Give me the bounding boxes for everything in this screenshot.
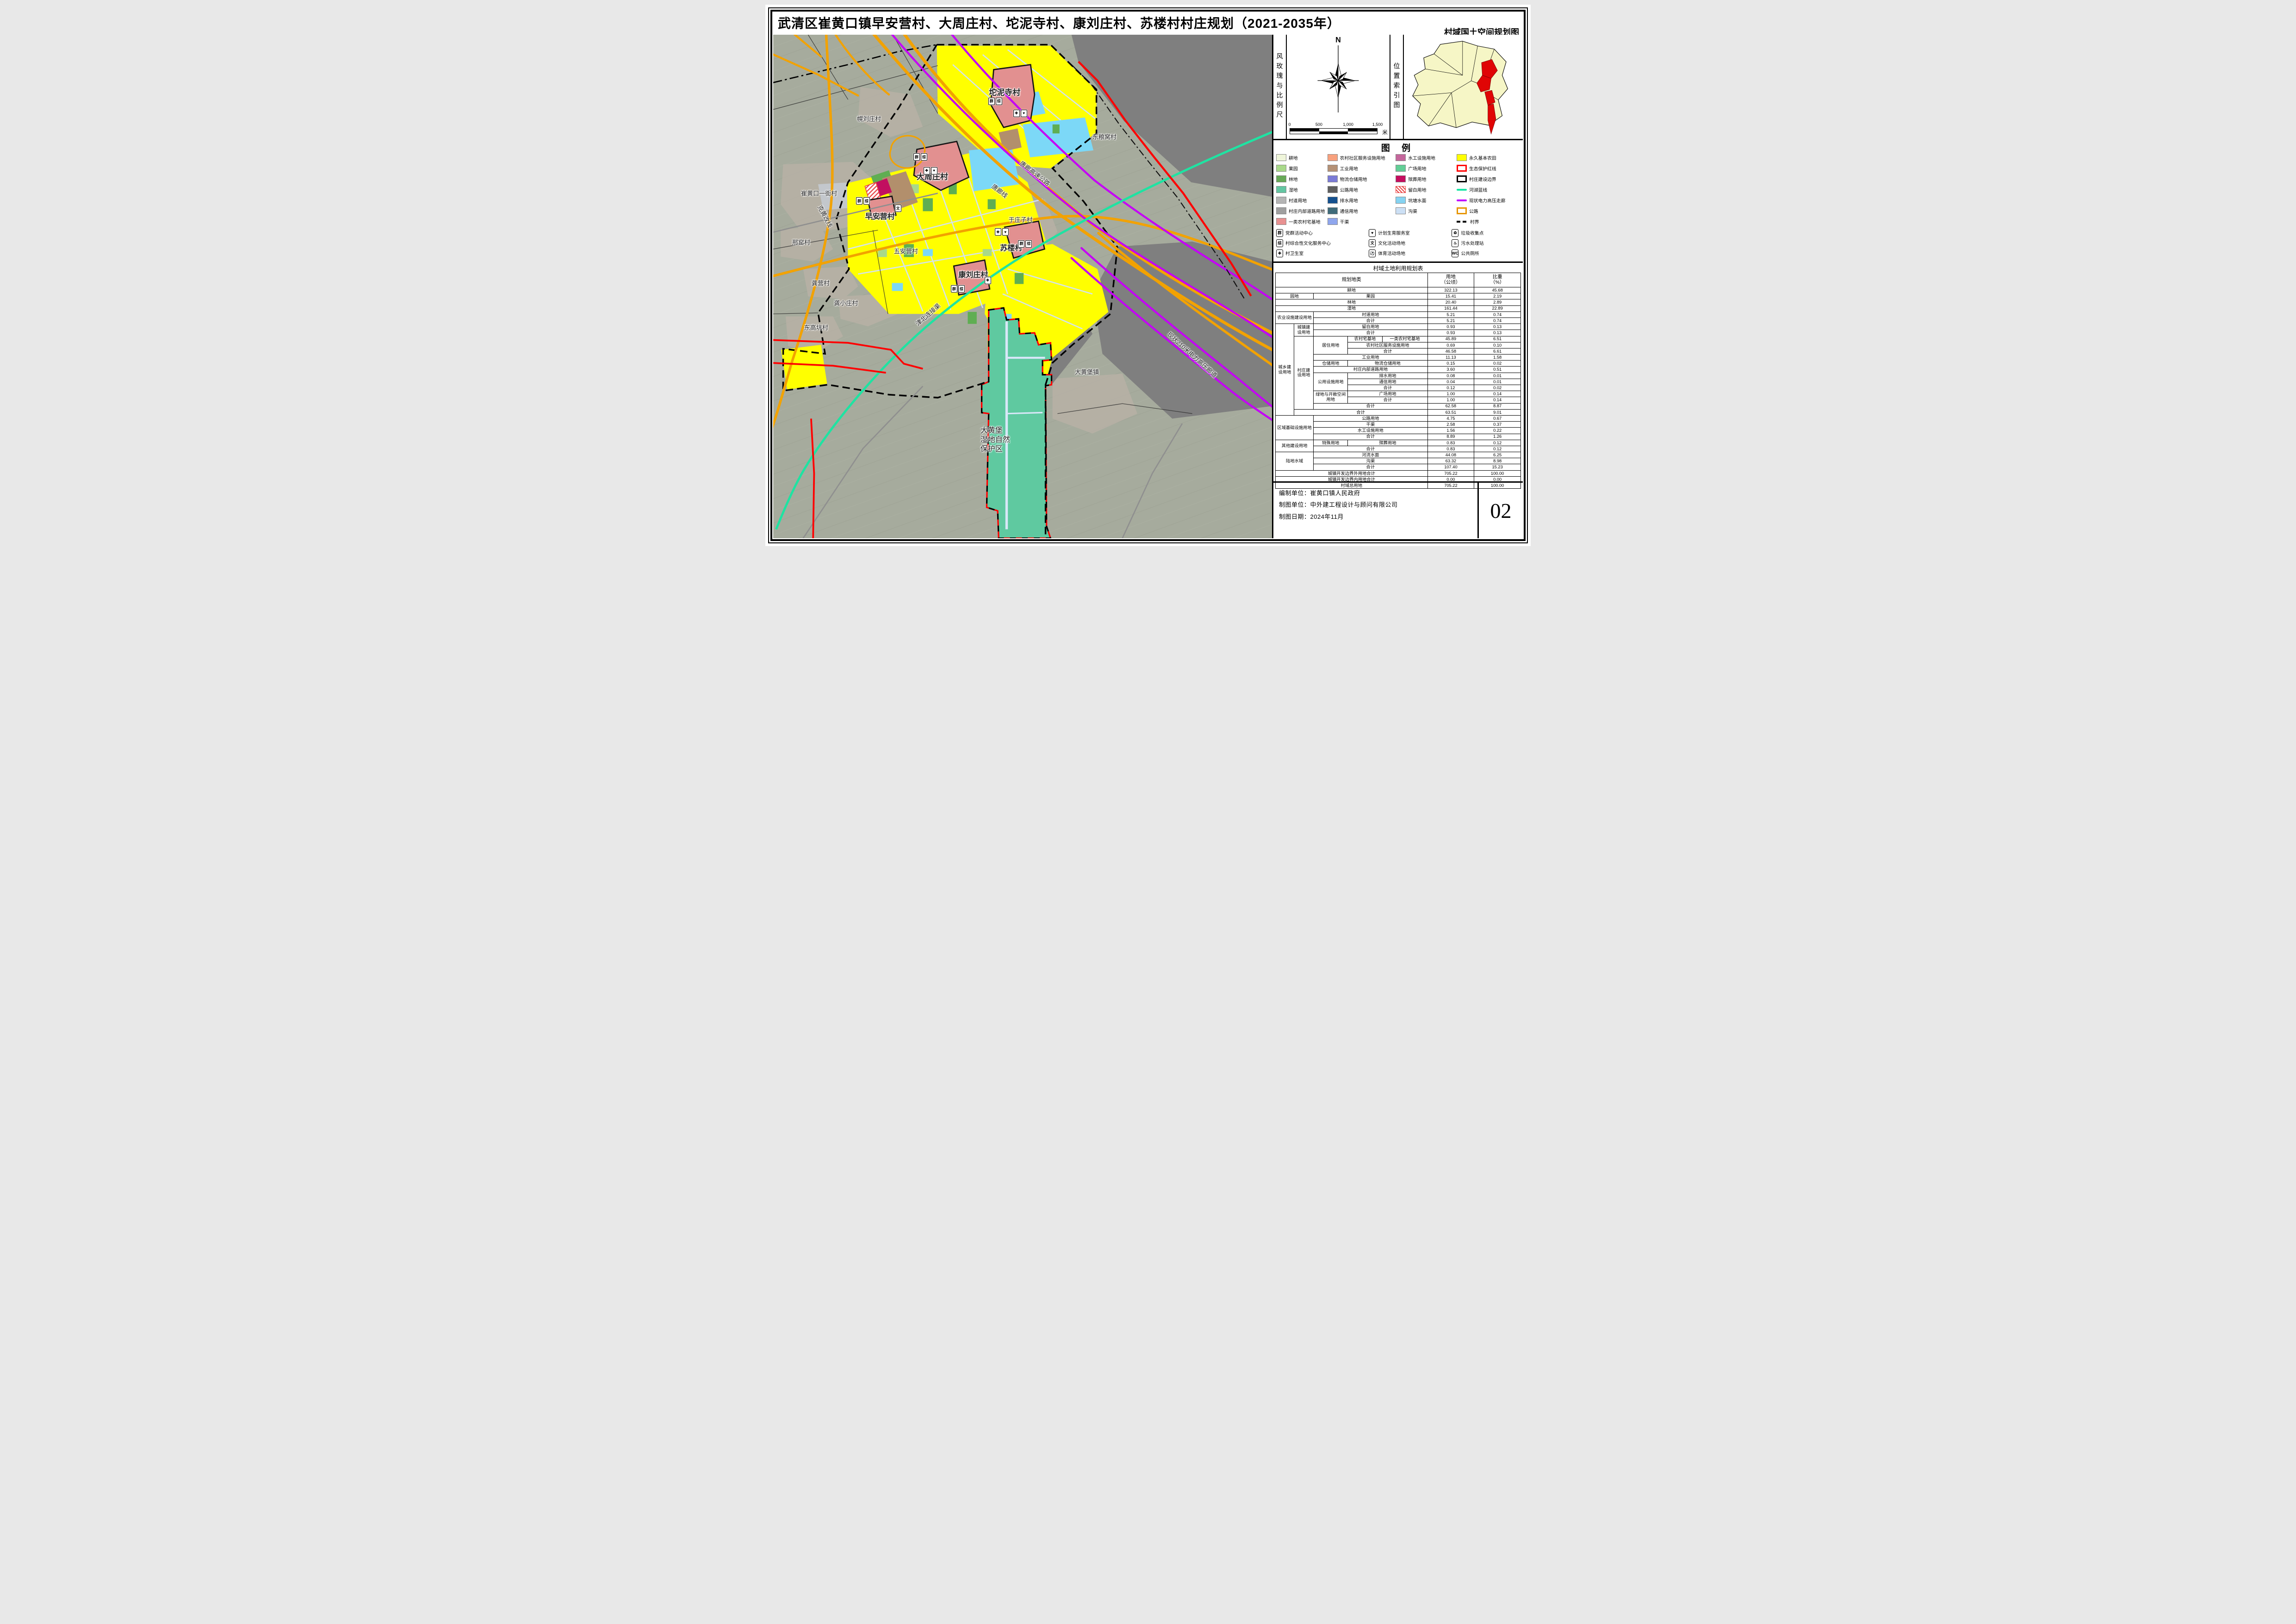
- legend-swatch-icon: [1328, 175, 1338, 182]
- table-cell: 农业设施建设用地: [1276, 311, 1314, 324]
- table-cell: 湿地: [1276, 305, 1428, 311]
- table-cell: 一类农村宅基地: [1382, 336, 1427, 342]
- legend-swatch-icon: [1396, 186, 1406, 193]
- facility-legend-item: ♻垃圾收集点: [1452, 228, 1520, 238]
- table-cell: 城镇开发边界外用地合计: [1276, 470, 1428, 476]
- legend-item: 通信用地: [1328, 205, 1396, 216]
- table-cell: 63.32: [1427, 458, 1474, 464]
- table-cell: 0.01: [1474, 373, 1521, 379]
- table-cell: 居住用地: [1314, 336, 1348, 355]
- legend-label: 工业用地: [1340, 165, 1358, 172]
- legend-swatch-icon: [1276, 175, 1286, 182]
- compass-section-label: 风玫瑰与比例尺: [1273, 35, 1287, 139]
- legend-label: 果园: [1289, 165, 1298, 172]
- table-cell: 0.93: [1427, 330, 1474, 336]
- table-cell: 殡葬用地: [1348, 440, 1427, 446]
- legend-label: 通信用地: [1340, 208, 1358, 214]
- table-cell: 8.98: [1474, 458, 1521, 464]
- table-cell: 0.08: [1427, 373, 1474, 379]
- legend-label: 一类农村宅基地: [1289, 218, 1321, 225]
- table-cell: 1.56: [1427, 428, 1474, 434]
- legend-swatch-icon: [1328, 154, 1338, 161]
- table-cell: 9.01: [1474, 409, 1521, 415]
- legend-label: 村界: [1470, 218, 1479, 225]
- table-cell: 161.44: [1427, 305, 1474, 311]
- legend-label: 公路: [1469, 208, 1478, 214]
- table-cell: 5.21: [1427, 317, 1474, 324]
- table-cell: 100.00: [1474, 470, 1521, 476]
- facility-label: 计划生育服务室: [1378, 230, 1410, 236]
- legend-label: 排水用地: [1340, 197, 1358, 204]
- table-cell: 0.13: [1474, 324, 1521, 330]
- table-cell: 0.02: [1474, 385, 1521, 391]
- legend-label: 农村社区服务设施用地: [1340, 155, 1385, 161]
- legend-swatch-icon: [1396, 165, 1406, 172]
- table-cell: 0.15: [1427, 361, 1474, 367]
- legend-swatch-icon: [1457, 199, 1467, 201]
- table-cell: 公用设施用地: [1314, 373, 1348, 391]
- facility-label: 村综合性文化服务中心: [1285, 240, 1331, 246]
- table-cell: 0.67: [1474, 415, 1521, 421]
- legend-label: 坑塘水面: [1408, 197, 1426, 204]
- legend-item: 村庄内部道路用地: [1276, 205, 1328, 216]
- table-cell: 107.40: [1427, 464, 1474, 470]
- table-cell: 合计: [1314, 330, 1427, 336]
- table-cell: 合计: [1314, 446, 1427, 452]
- scale-tick-label: 1,000: [1343, 122, 1353, 127]
- facility-icon: 文: [1369, 239, 1376, 247]
- table-cell: 705.22: [1427, 470, 1474, 476]
- table-cell: 1.26: [1474, 434, 1521, 440]
- table-cell: 1.00: [1427, 397, 1474, 403]
- table-cell: 11.13: [1427, 355, 1474, 361]
- scale-unit: 米: [1382, 128, 1388, 136]
- table-cell: 1.58: [1474, 355, 1521, 361]
- page-title: 武清区崔黄口镇早安营村、大周庄村、坨泥寺村、康刘庄村、苏楼村村庄规划（2021-…: [773, 12, 1523, 32]
- legend-item: 排水用地: [1328, 195, 1396, 205]
- table-cell: 林地: [1276, 299, 1428, 305]
- legend-item: 殡葬用地: [1396, 174, 1457, 184]
- table-cell: 46.58: [1427, 348, 1474, 354]
- table-cell: 合计: [1314, 403, 1427, 409]
- index-map-svg: [1404, 35, 1523, 139]
- table-cell: 绿地与开敞空间用地: [1314, 391, 1348, 403]
- legend-label: 湿地: [1289, 187, 1298, 193]
- table-cell: 0.12: [1474, 440, 1521, 446]
- legend-swatch-icon: [1457, 221, 1468, 223]
- table-cell: 合计: [1348, 385, 1427, 391]
- table-cell: 干渠: [1314, 422, 1427, 428]
- table-cell: 45.68: [1474, 287, 1521, 293]
- table-cell: 8.89: [1427, 434, 1474, 440]
- table-cell: 0.37: [1474, 422, 1521, 428]
- legend-item: 坑塘水面: [1396, 195, 1457, 205]
- scale-tick-label: 500: [1316, 122, 1322, 127]
- table-cell: 城镇建 设用地: [1294, 324, 1313, 336]
- table-cell: 15.41: [1427, 293, 1474, 299]
- table-cell: 0.69: [1427, 342, 1474, 348]
- table-cell: 0.51: [1474, 367, 1521, 373]
- facility-legend-item: 群党群活动中心: [1276, 228, 1369, 238]
- legend-item: 河湖蓝线: [1457, 184, 1520, 195]
- table-cell: 广场用地: [1348, 391, 1427, 397]
- table-cell: 0.00: [1427, 476, 1474, 482]
- legend-item: 物流仓储用地: [1328, 174, 1396, 184]
- facility-icon: ♥: [1369, 229, 1376, 237]
- table-cell: 2.89: [1474, 299, 1521, 305]
- table-header-cell: 用地 （公顷）: [1427, 273, 1474, 287]
- legend-label: 现状电力高压走廊: [1469, 197, 1505, 204]
- facility-icon: ⚽: [1369, 249, 1376, 257]
- legend-item: 林地: [1276, 174, 1328, 184]
- legend-swatch-icon: [1276, 218, 1286, 225]
- legend-item: 水工设施用地: [1396, 152, 1457, 163]
- legend-item: 公路用地: [1328, 184, 1396, 195]
- table-cell: 城镇开发边界内用地合计: [1276, 476, 1428, 482]
- legend-swatch-icon: [1276, 186, 1286, 193]
- table-cell: 0.74: [1474, 311, 1521, 317]
- table-cell: 0.02: [1474, 361, 1521, 367]
- legend-label: 耕地: [1289, 155, 1298, 161]
- facility-icon: ✚: [1276, 249, 1283, 257]
- table-cell: 0.00: [1474, 476, 1521, 482]
- scale-tick-label: 0: [1288, 122, 1291, 127]
- facility-label: 村卫生室: [1285, 250, 1303, 256]
- legend-column: 永久基本农田生态保护红线村庄建设边界河湖蓝线现状电力高压走廊公路村界: [1457, 152, 1520, 227]
- credit-line: 制图日期：2024年11月: [1279, 511, 1477, 523]
- legend-label: 沟渠: [1408, 208, 1417, 214]
- table-cell: 6.51: [1474, 336, 1521, 342]
- facility-icon: ♻: [1452, 229, 1458, 237]
- facility-label: 体育活动场地: [1378, 250, 1405, 256]
- legend-swatch-icon: [1457, 165, 1467, 172]
- legend-swatch-icon: [1276, 165, 1286, 172]
- table-cell: 农村宅基地: [1348, 336, 1382, 342]
- scale-bar: 05001,0001,500 米: [1290, 122, 1378, 135]
- legend-column: 农村社区服务设施用地工业用地物流仓储用地公路用地排水用地通信用地干渠: [1328, 152, 1396, 227]
- facility-label: 文化活动场地: [1378, 240, 1405, 246]
- legend-item: 永久基本农田: [1457, 152, 1520, 163]
- legend-label: 村道用地: [1289, 197, 1307, 204]
- legend-item: 湿地: [1276, 184, 1328, 195]
- facility-icon: WC: [1452, 249, 1458, 257]
- table-cell: 果园: [1314, 293, 1427, 299]
- table-cell: 村庄建 设用地: [1294, 336, 1313, 409]
- page-number: 02: [1477, 483, 1523, 538]
- table-header-cell: 规划地类: [1276, 273, 1428, 287]
- table-cell: 0.13: [1474, 330, 1521, 336]
- facility-label: 公共厕所: [1461, 250, 1479, 256]
- map-svg: [773, 35, 1272, 538]
- landuse-table-section: 村域土地利用规划表 规划地类用地 （公顷）比重 （%）耕地322.1345.68…: [1273, 263, 1523, 483]
- facility-label: 垃圾收集点: [1461, 230, 1483, 236]
- table-cell: 0.22: [1474, 428, 1521, 434]
- legend-item: 村界: [1457, 216, 1520, 227]
- table-header-cell: 比重 （%）: [1474, 273, 1521, 287]
- table-cell: 特殊用地: [1314, 440, 1348, 446]
- legend-item: 现状电力高压走廊: [1457, 195, 1520, 205]
- legend-item: 工业用地: [1328, 163, 1396, 174]
- legend-item: 耕地: [1276, 152, 1328, 163]
- table-cell: 陆地水域: [1276, 452, 1314, 471]
- table-cell: 合计: [1314, 464, 1427, 470]
- legend-label: 林地: [1289, 176, 1298, 182]
- table-cell: 公路用地: [1314, 415, 1427, 421]
- facility-legend-item: ♨污水处理站: [1452, 238, 1520, 248]
- legend-swatch-icon: [1396, 175, 1406, 182]
- legend-item: 公路: [1457, 205, 1520, 216]
- legend-swatch-icon: [1396, 154, 1406, 161]
- table-cell: 沟渠: [1314, 458, 1427, 464]
- table-cell: 水工设施用地: [1314, 428, 1427, 434]
- facility-legend-item: WC公共厕所: [1452, 248, 1520, 258]
- legend-item: 生态保护红线: [1457, 163, 1520, 174]
- legend-label: 干渠: [1340, 218, 1349, 225]
- table-cell: 0.93: [1427, 324, 1474, 330]
- table-cell: 物流仓储用地: [1348, 361, 1427, 367]
- table-cell: 1.00: [1427, 391, 1474, 397]
- legend-label: 永久基本农田: [1469, 155, 1496, 161]
- legend-item: 农村社区服务设施用地: [1328, 152, 1396, 163]
- legend-title: 图 例: [1276, 141, 1520, 152]
- legend-swatch-icon: [1276, 197, 1286, 204]
- table-cell: 3.60: [1427, 367, 1474, 373]
- table-cell: 6.25: [1474, 452, 1521, 458]
- facility-label: 污水处理站: [1461, 240, 1483, 246]
- legend-label: 公路用地: [1340, 187, 1358, 193]
- info-panel: 风玫瑰与比例尺 N: [1272, 35, 1523, 538]
- facility-icon: 群: [1276, 229, 1283, 237]
- table-cell: 0.12: [1474, 446, 1521, 452]
- compass-cell: N: [1287, 35, 1390, 139]
- facility-label: 党群活动中心: [1285, 230, 1313, 236]
- table-cell: 8.87: [1474, 403, 1521, 409]
- table-cell: 工业用地: [1314, 355, 1427, 361]
- table-cell: 0.83: [1427, 446, 1474, 452]
- table-title: 村域土地利用规划表: [1275, 264, 1521, 273]
- table-cell: 0.14: [1474, 397, 1521, 403]
- table-cell: 村道用地: [1314, 311, 1427, 317]
- legend-label: 留白用地: [1408, 187, 1426, 193]
- legend-column: 水工设施用地广场用地殡葬用地留白用地坑塘水面沟渠: [1396, 152, 1457, 227]
- table-cell: 0.83: [1427, 440, 1474, 446]
- credit-line: 制图单位：中外建工程设计与顾问有限公司: [1279, 499, 1477, 510]
- legend-swatch-icon: [1396, 197, 1406, 204]
- legend-column: 耕地果园林地湿地村道用地村庄内部道路用地一类农村宅基地: [1276, 152, 1328, 227]
- credit-line: 编制单位：崔黄口镇人民政府: [1279, 487, 1477, 499]
- legend-label: 村庄建设边界: [1469, 176, 1496, 182]
- table-cell: 排水用地: [1348, 373, 1427, 379]
- table-cell: 合计: [1314, 434, 1427, 440]
- table-cell: 0.12: [1427, 385, 1474, 391]
- legend-swatch-icon: [1457, 175, 1467, 182]
- table-cell: 合计: [1348, 348, 1427, 354]
- legend-label: 生态保护红线: [1469, 165, 1496, 172]
- table-cell: 62.58: [1427, 403, 1474, 409]
- facility-legend-item: 综村综合性文化服务中心: [1276, 238, 1369, 248]
- legend-item: 干渠: [1328, 216, 1396, 227]
- location-index-map[interactable]: [1404, 35, 1523, 139]
- legend-item: 广场用地: [1396, 163, 1457, 174]
- table-cell: 其他建设用地: [1276, 440, 1314, 452]
- legend-label: 广场用地: [1408, 165, 1426, 172]
- table-cell: 区域基础设施用地: [1276, 415, 1314, 440]
- table-cell: 44.08: [1427, 452, 1474, 458]
- index-section-label: 位置索引图: [1390, 35, 1404, 139]
- title-bar: 武清区崔黄口镇早安营村、大周庄村、坨泥寺村、康刘庄村、苏楼村村庄规划（2021-…: [773, 12, 1523, 35]
- legend-item: 果园: [1276, 163, 1328, 174]
- legend-item: 村庄建设边界: [1457, 174, 1520, 184]
- table-cell: 22.89: [1474, 305, 1521, 311]
- legend-item: 村道用地: [1276, 195, 1328, 205]
- table-cell: 0.04: [1427, 379, 1474, 385]
- table-cell: 2.19: [1474, 293, 1521, 299]
- legend-swatch-icon: [1396, 207, 1406, 214]
- table-cell: 2.58: [1427, 422, 1474, 428]
- table-cell: 合计: [1314, 317, 1427, 324]
- table-cell: 留白用地: [1314, 324, 1427, 330]
- legend-swatch-icon: [1328, 186, 1338, 193]
- table-cell: 农村社区服务设施用地: [1348, 342, 1427, 348]
- legend-swatch-icon: [1457, 189, 1467, 191]
- title-block: 编制单位：崔黄口镇人民政府制图单位：中外建工程设计与顾问有限公司制图日期：202…: [1273, 483, 1523, 538]
- table-cell: 河流水面: [1314, 452, 1427, 458]
- table-cell: 仓储用地: [1314, 361, 1348, 367]
- table-cell: 15.23: [1474, 464, 1521, 470]
- table-cell: 合计: [1294, 409, 1427, 415]
- credits: 编制单位：崔黄口镇人民政府制图单位：中外建工程设计与顾问有限公司制图日期：202…: [1273, 483, 1477, 538]
- legend-swatch-icon: [1276, 154, 1286, 161]
- legend-label: 村庄内部道路用地: [1289, 208, 1325, 214]
- table-cell: 通信用地: [1348, 379, 1427, 385]
- table-cell: 5.21: [1427, 311, 1474, 317]
- legend-label: 水工设施用地: [1408, 155, 1435, 161]
- legend-swatch-icon: [1328, 165, 1338, 172]
- legend-label: 殡葬用地: [1408, 176, 1426, 182]
- legend-swatch-icon: [1328, 218, 1338, 225]
- legend-swatch-icon: [1328, 207, 1338, 214]
- facility-legend-item: ⚽体育活动场地: [1369, 248, 1452, 258]
- facility-icon: ♨: [1452, 239, 1458, 247]
- table-cell: 0.14: [1474, 391, 1521, 397]
- legend-item: [1396, 216, 1457, 227]
- facility-legend-item: ♥计划生育服务室: [1369, 228, 1452, 238]
- legend: 图 例 耕地果园林地湿地村道用地村庄内部道路用地一类农村宅基地农村社区服务设施用…: [1273, 140, 1523, 263]
- legend-swatch-icon: [1328, 197, 1338, 204]
- facility-icon: 综: [1276, 239, 1283, 247]
- plan-sheet: 武清区崔黄口镇早安营村、大周庄村、坨泥寺村、康刘庄村、苏楼村村庄规划（2021-…: [765, 5, 1531, 546]
- legend-swatch-icon: [1276, 207, 1286, 214]
- table-cell: 0.10: [1474, 342, 1521, 348]
- legend-item: 留白用地: [1396, 184, 1457, 195]
- legend-item: 沟渠: [1396, 205, 1457, 216]
- table-cell: 城乡建 设用地: [1276, 324, 1294, 416]
- compass-index-row: 风玫瑰与比例尺 N: [1273, 35, 1523, 140]
- scale-tick-label: 1,500: [1372, 122, 1383, 127]
- compass-rose-icon: N: [1301, 36, 1376, 114]
- facility-legend-item: ✚村卫生室: [1276, 248, 1369, 258]
- table-cell: 6.61: [1474, 348, 1521, 354]
- table-cell: 村庄内部道路用地: [1314, 367, 1427, 373]
- svg-text:N: N: [1335, 36, 1341, 44]
- table-cell: 322.13: [1427, 287, 1474, 293]
- table-cell: 耕地: [1276, 287, 1428, 293]
- table-cell: 20.40: [1427, 299, 1474, 305]
- table-cell: 4.75: [1427, 415, 1474, 421]
- legend-label: 河湖蓝线: [1469, 187, 1487, 193]
- table-cell: 45.89: [1427, 336, 1474, 342]
- legend-item: 一类农村宅基地: [1276, 216, 1328, 227]
- table-cell: 合计: [1348, 397, 1427, 403]
- map-canvas[interactable]: 幌刘庄村东粮窝村坨泥寺村大周庄村崔黄口一街村早安营村邢窑村于庄子村五安营村苏楼村…: [773, 35, 1272, 538]
- table-cell: 0.74: [1474, 317, 1521, 324]
- facility-legend-item: 文文化活动场地: [1369, 238, 1452, 248]
- landuse-table: 规划地类用地 （公顷）比重 （%）耕地322.1345.68园地果园15.412…: [1275, 273, 1521, 489]
- legend-swatch-icon: [1457, 207, 1467, 214]
- table-cell: 63.51: [1427, 409, 1474, 415]
- legend-label: 物流仓储用地: [1340, 176, 1367, 182]
- table-cell: 园地: [1276, 293, 1314, 299]
- legend-swatch-icon: [1457, 154, 1467, 161]
- table-cell: 0.01: [1474, 379, 1521, 385]
